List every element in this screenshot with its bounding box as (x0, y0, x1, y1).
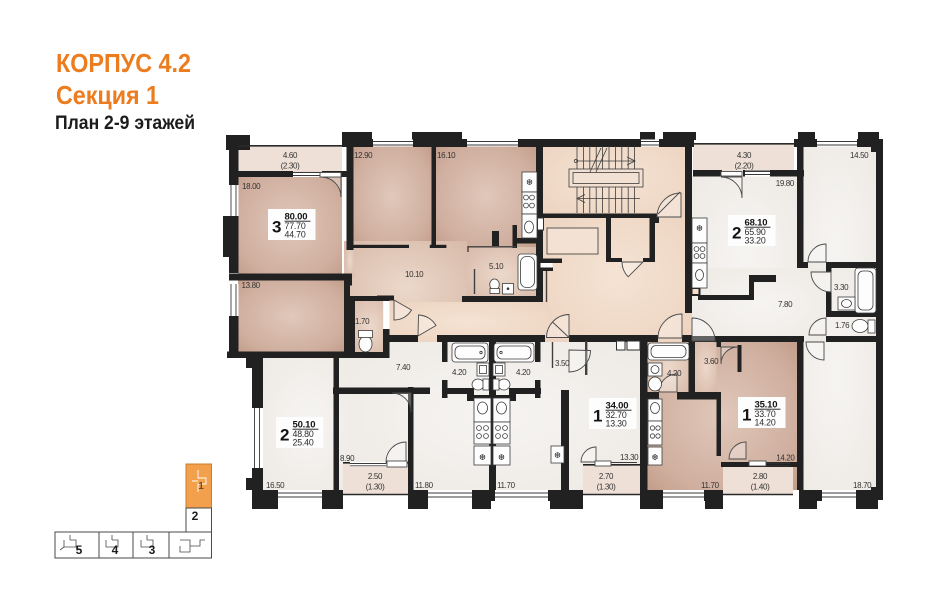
svg-text:16.50: 16.50 (266, 481, 285, 490)
svg-text:2: 2 (192, 509, 199, 523)
svg-text:5.10: 5.10 (489, 262, 504, 271)
svg-text:1.76: 1.76 (835, 321, 850, 330)
svg-text:4.20: 4.20 (452, 368, 467, 377)
svg-text:14.20: 14.20 (776, 454, 795, 463)
svg-text:19.80: 19.80 (776, 179, 795, 188)
svg-text:18.00: 18.00 (242, 182, 261, 191)
svg-text:(1.40): (1.40) (751, 483, 770, 492)
svg-text:❆: ❆ (498, 453, 505, 462)
svg-text:2: 2 (280, 426, 289, 445)
svg-text:2.50: 2.50 (368, 472, 383, 481)
svg-text:11.70: 11.70 (497, 481, 516, 490)
svg-text:3.30: 3.30 (834, 283, 849, 292)
svg-text:План 2-9 этажей: План 2-9 этажей (55, 112, 195, 134)
svg-text:❆: ❆ (479, 453, 486, 462)
svg-text:1: 1 (742, 406, 751, 425)
svg-text:1: 1 (198, 481, 204, 492)
svg-text:25.40: 25.40 (293, 438, 314, 448)
svg-text:3.60: 3.60 (704, 357, 719, 366)
svg-text:2.80: 2.80 (753, 472, 768, 481)
svg-text:2: 2 (732, 224, 741, 243)
svg-text:4.20: 4.20 (667, 369, 682, 378)
svg-text:7.80: 7.80 (778, 300, 793, 309)
svg-text:4: 4 (112, 543, 119, 557)
svg-text:8.90: 8.90 (340, 454, 355, 463)
svg-text:11.80: 11.80 (415, 481, 434, 490)
svg-text:❆: ❆ (696, 224, 703, 233)
svg-text:Секция 1: Секция 1 (56, 80, 159, 110)
svg-text:13.30: 13.30 (620, 453, 639, 462)
svg-text:(2.30): (2.30) (281, 162, 300, 171)
svg-text:❆: ❆ (526, 178, 533, 187)
svg-text:16.10: 16.10 (437, 151, 456, 160)
svg-text:33.20: 33.20 (745, 236, 766, 246)
svg-text:1.70: 1.70 (355, 317, 370, 326)
svg-text:14.50: 14.50 (850, 151, 869, 160)
svg-text:14.20: 14.20 (755, 418, 776, 428)
svg-text:10.10: 10.10 (405, 270, 424, 279)
svg-text:❆: ❆ (652, 453, 659, 462)
svg-text:(1.30): (1.30) (597, 483, 616, 492)
svg-text:12.90: 12.90 (354, 151, 373, 160)
svg-text:11.70: 11.70 (701, 481, 720, 490)
svg-text:(2.20): (2.20) (735, 162, 754, 171)
svg-text:3: 3 (272, 218, 281, 237)
svg-text:7.40: 7.40 (396, 363, 411, 372)
svg-text:18.70: 18.70 (853, 481, 872, 490)
svg-text:4.60: 4.60 (283, 151, 298, 160)
svg-text:13.80: 13.80 (242, 281, 261, 290)
svg-text:❆: ❆ (554, 451, 561, 460)
svg-text:44.70: 44.70 (285, 230, 306, 240)
svg-text:4.30: 4.30 (737, 151, 752, 160)
svg-text:1: 1 (593, 407, 602, 426)
svg-text:3: 3 (149, 543, 156, 557)
svg-text:13.30: 13.30 (606, 419, 627, 429)
svg-text:3.50: 3.50 (555, 359, 570, 368)
svg-text:4.20: 4.20 (516, 368, 531, 377)
svg-text:2.70: 2.70 (599, 472, 614, 481)
svg-text:КОРПУС 4.2: КОРПУС 4.2 (56, 48, 191, 78)
svg-text:5: 5 (76, 543, 83, 557)
svg-text:(1.30): (1.30) (366, 483, 385, 492)
